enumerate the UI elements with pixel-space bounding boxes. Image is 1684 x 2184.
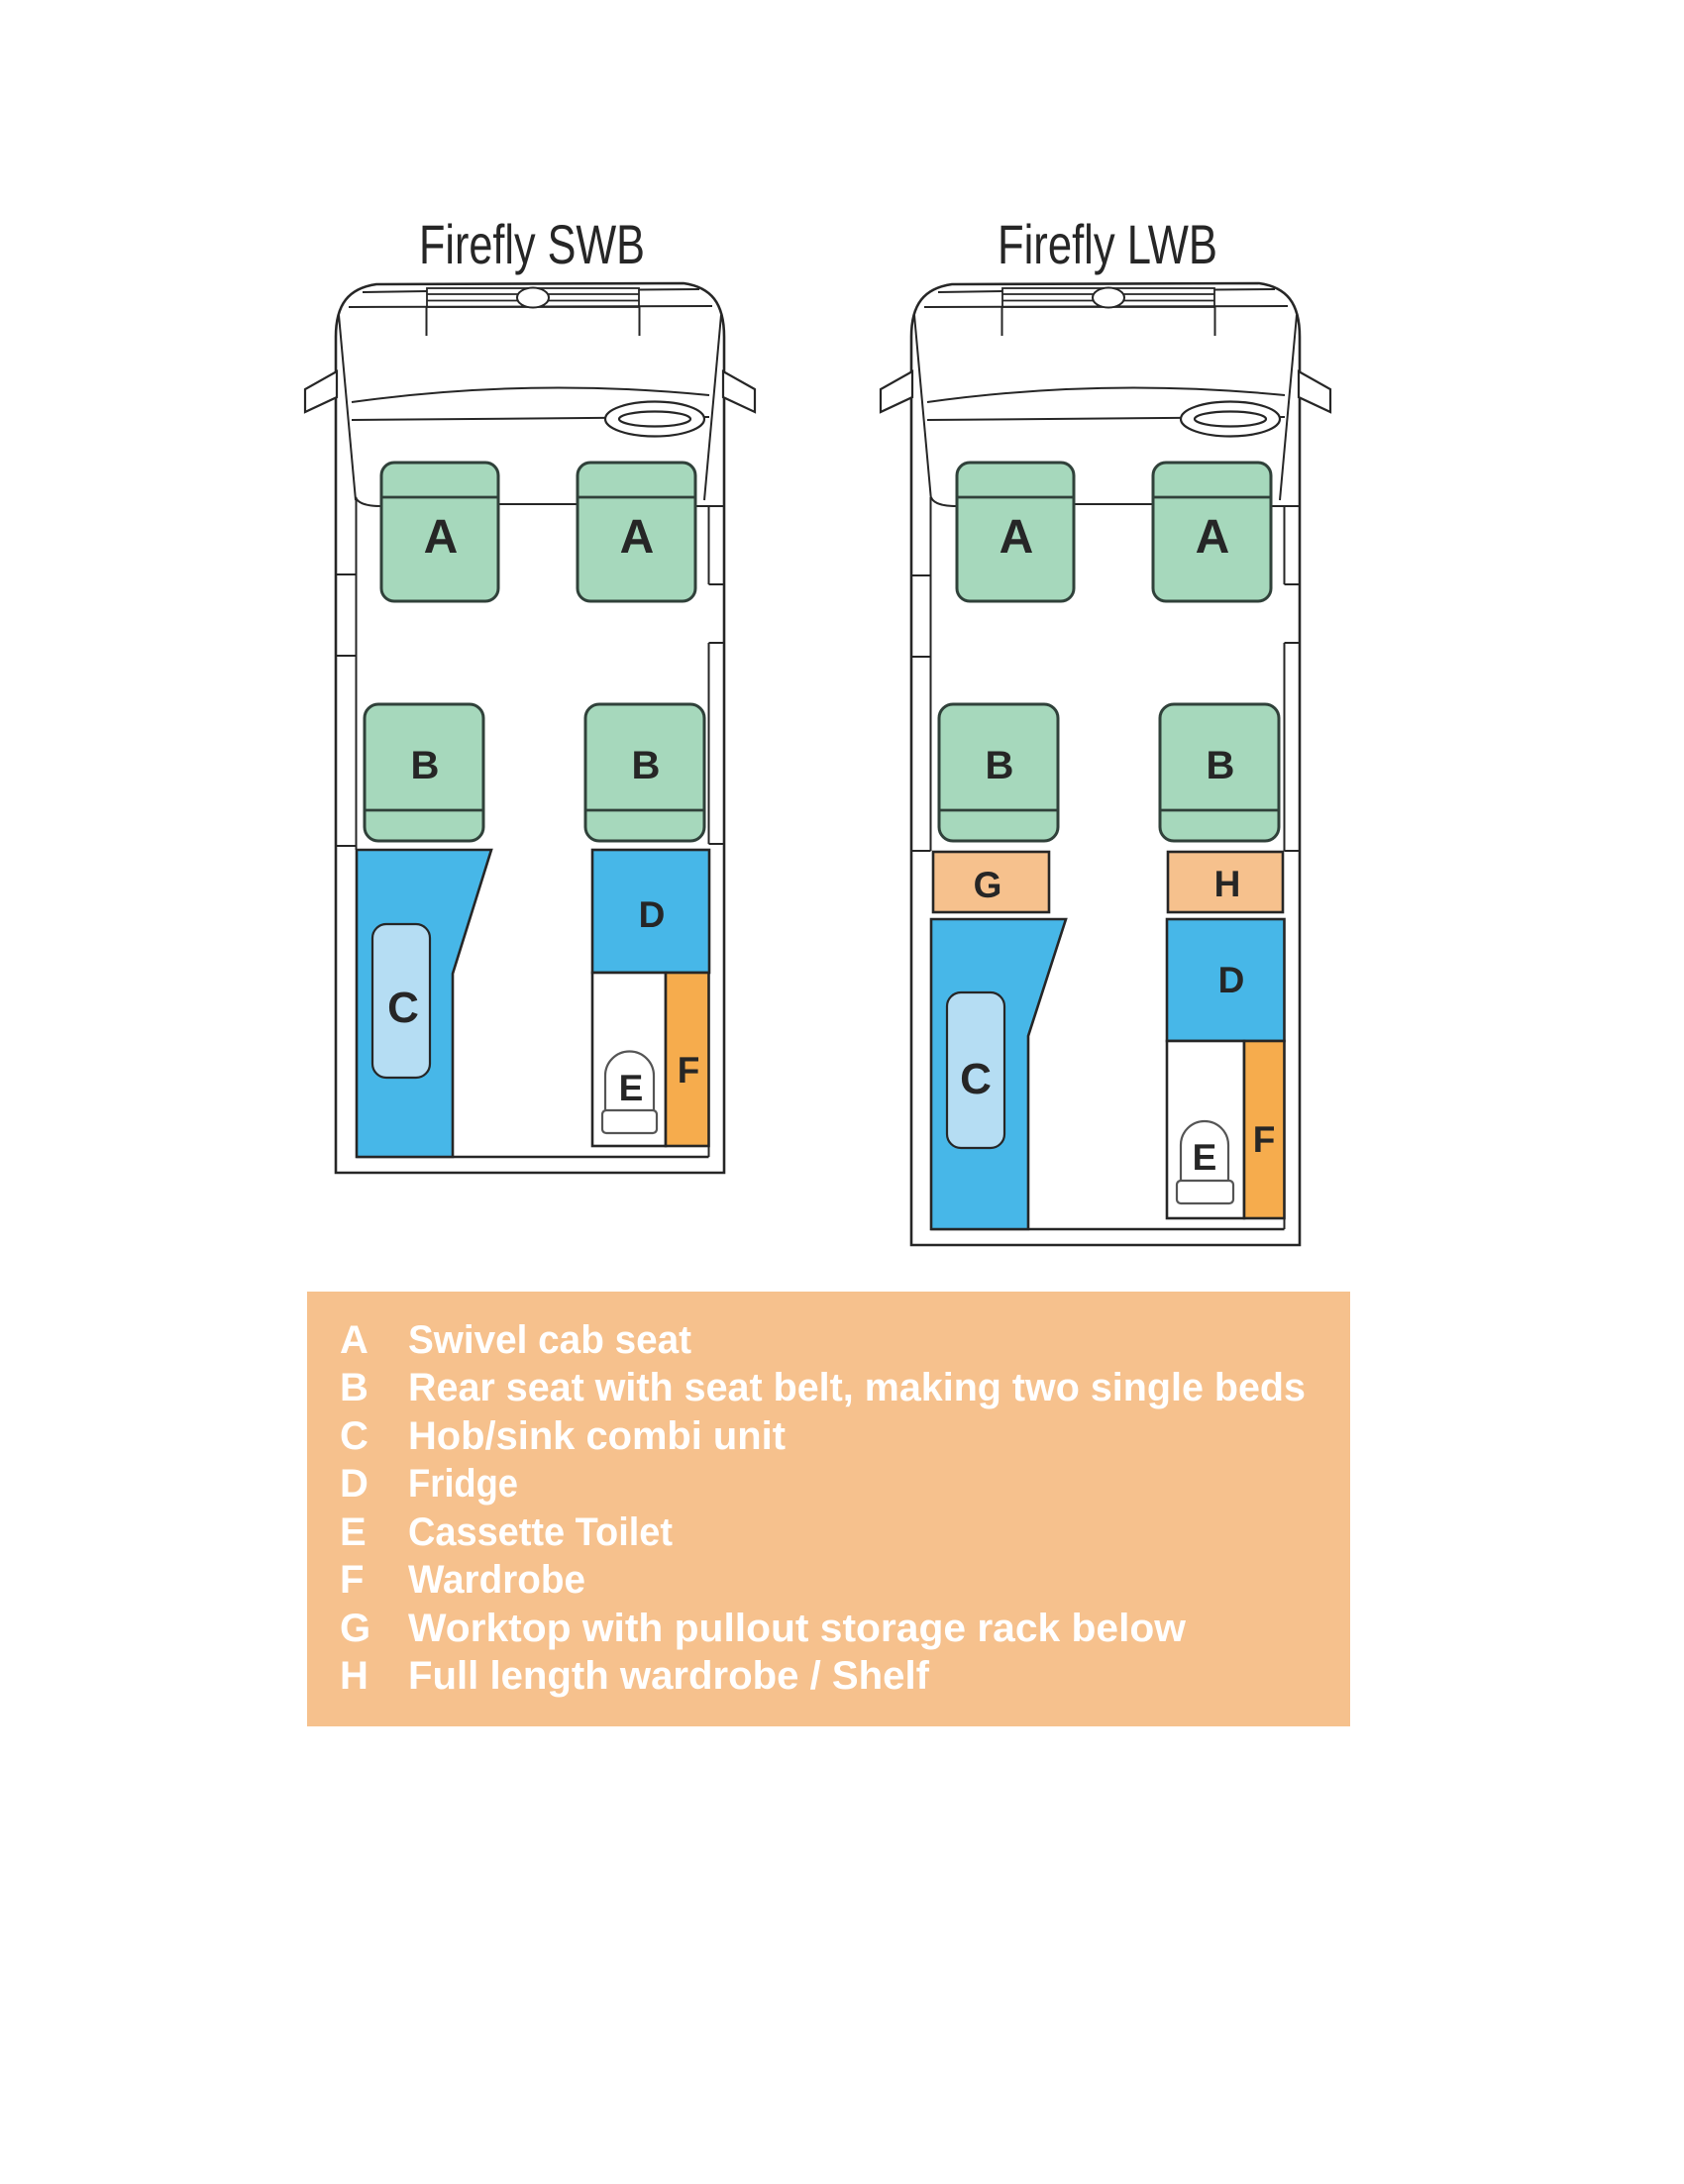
svg-text:G: G [974,865,1002,905]
svg-text:Fridge: Fridge [408,1462,518,1506]
svg-text:Rear seat with seat belt, maki: Rear seat with seat belt, making two sin… [408,1366,1306,1409]
svg-text:D: D [1218,960,1245,1000]
svg-text:A: A [620,511,655,564]
svg-text:Firefly SWB: Firefly SWB [419,213,645,275]
svg-text:B: B [632,744,661,787]
svg-text:F: F [678,1050,700,1091]
svg-text:A: A [1196,511,1230,564]
svg-text:C: C [960,1055,992,1103]
svg-text:Cassette Toilet: Cassette Toilet [408,1510,673,1554]
svg-text:F: F [1253,1119,1276,1160]
svg-text:D: D [340,1462,368,1506]
svg-text:B: B [340,1366,368,1409]
svg-text:E: E [1193,1137,1217,1178]
svg-text:D: D [639,894,666,935]
svg-text:A: A [340,1318,368,1362]
svg-text:B: B [986,744,1014,787]
svg-text:Firefly LWB: Firefly LWB [998,213,1217,275]
svg-text:E: E [619,1068,644,1108]
svg-text:B: B [1207,744,1235,787]
svg-text:H: H [340,1654,368,1698]
svg-text:G: G [340,1607,370,1650]
svg-text:A: A [1000,511,1034,564]
svg-text:Full length wardrobe / Shelf: Full length wardrobe / Shelf [408,1654,930,1698]
svg-text:Wardrobe: Wardrobe [408,1558,585,1602]
svg-text:C: C [340,1414,368,1458]
svg-text:B: B [411,744,440,787]
svg-text:H: H [1214,864,1241,904]
svg-text:Hob/sink combi unit: Hob/sink combi unit [408,1414,786,1458]
svg-text:Swivel cab seat: Swivel cab seat [408,1318,691,1362]
svg-text:C: C [387,984,419,1032]
svg-text:E: E [340,1510,367,1554]
svg-text:Worktop with pullout storage r: Worktop with pullout storage rack below [408,1607,1187,1650]
svg-text:A: A [424,511,459,564]
svg-text:F: F [340,1558,364,1602]
